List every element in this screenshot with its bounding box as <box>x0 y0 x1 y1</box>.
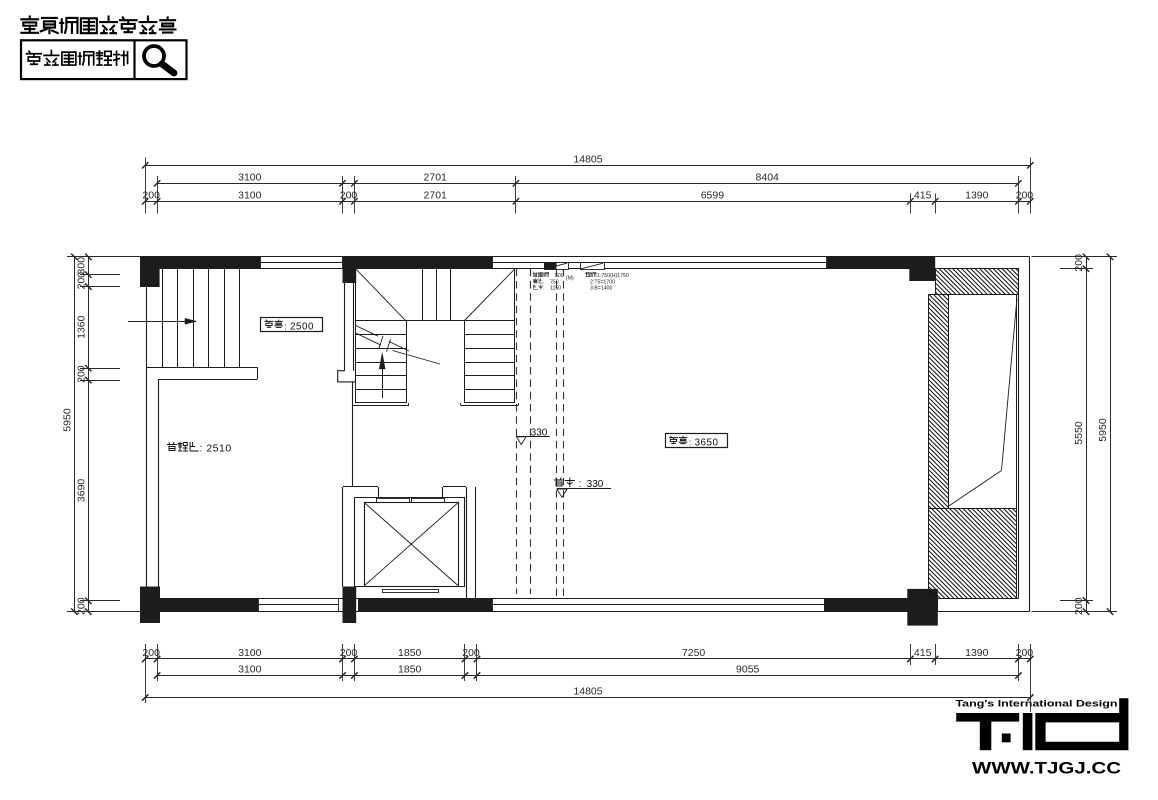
svg-text:5950: 5950 <box>1097 418 1109 442</box>
svg-text:1150: 1150 <box>550 286 561 292</box>
svg-text:14805: 14805 <box>573 686 602 698</box>
svg-text:750: 750 <box>550 279 559 285</box>
svg-text:3650: 3650 <box>695 438 719 449</box>
svg-text:3690: 3690 <box>75 479 87 503</box>
svg-text:1390: 1390 <box>965 647 989 659</box>
svg-text::: : <box>689 438 692 448</box>
svg-text:3100: 3100 <box>238 664 262 676</box>
svg-text:415: 415 <box>914 189 932 201</box>
svg-text:8404: 8404 <box>756 171 780 183</box>
svg-text:3100: 3100 <box>238 189 262 201</box>
svg-text:3100: 3100 <box>238 647 262 659</box>
svg-text:5550: 5550 <box>1073 421 1085 445</box>
svg-text:3:B=1400: 3:B=1400 <box>590 286 612 292</box>
svg-text:(M): (M) <box>566 276 574 282</box>
svg-text:2701: 2701 <box>424 171 448 183</box>
svg-text:2:T5=1700: 2:T5=1700 <box>590 279 615 285</box>
svg-text:200: 200 <box>1073 597 1085 615</box>
svg-text:5950: 5950 <box>62 408 74 432</box>
svg-text:9055: 9055 <box>736 664 760 676</box>
svg-text:2500: 2500 <box>290 321 314 332</box>
svg-text:1:750(H)1750: 1:750(H)1750 <box>597 273 629 279</box>
svg-text:1850: 1850 <box>398 647 422 659</box>
svg-text:3100: 3100 <box>238 171 262 183</box>
svg-text:500: 500 <box>555 273 564 279</box>
svg-text:300: 300 <box>75 257 87 275</box>
svg-text::: : <box>284 321 287 331</box>
svg-text:1850: 1850 <box>398 664 422 676</box>
svg-text:2510: 2510 <box>206 442 231 454</box>
svg-text:7250: 7250 <box>682 647 706 659</box>
svg-text:2701: 2701 <box>424 189 448 201</box>
svg-text:Tang's International Design: Tang's International Design <box>956 699 1118 709</box>
svg-text:1360: 1360 <box>75 315 87 339</box>
svg-text:1390: 1390 <box>965 189 989 201</box>
svg-text:6599: 6599 <box>701 189 725 201</box>
svg-text::: : <box>200 443 203 454</box>
svg-text:415: 415 <box>914 647 932 659</box>
svg-text:14805: 14805 <box>573 153 602 165</box>
svg-text:WWW.TJGJ.CC: WWW.TJGJ.CC <box>972 759 1121 778</box>
svg-text:200: 200 <box>75 597 87 615</box>
